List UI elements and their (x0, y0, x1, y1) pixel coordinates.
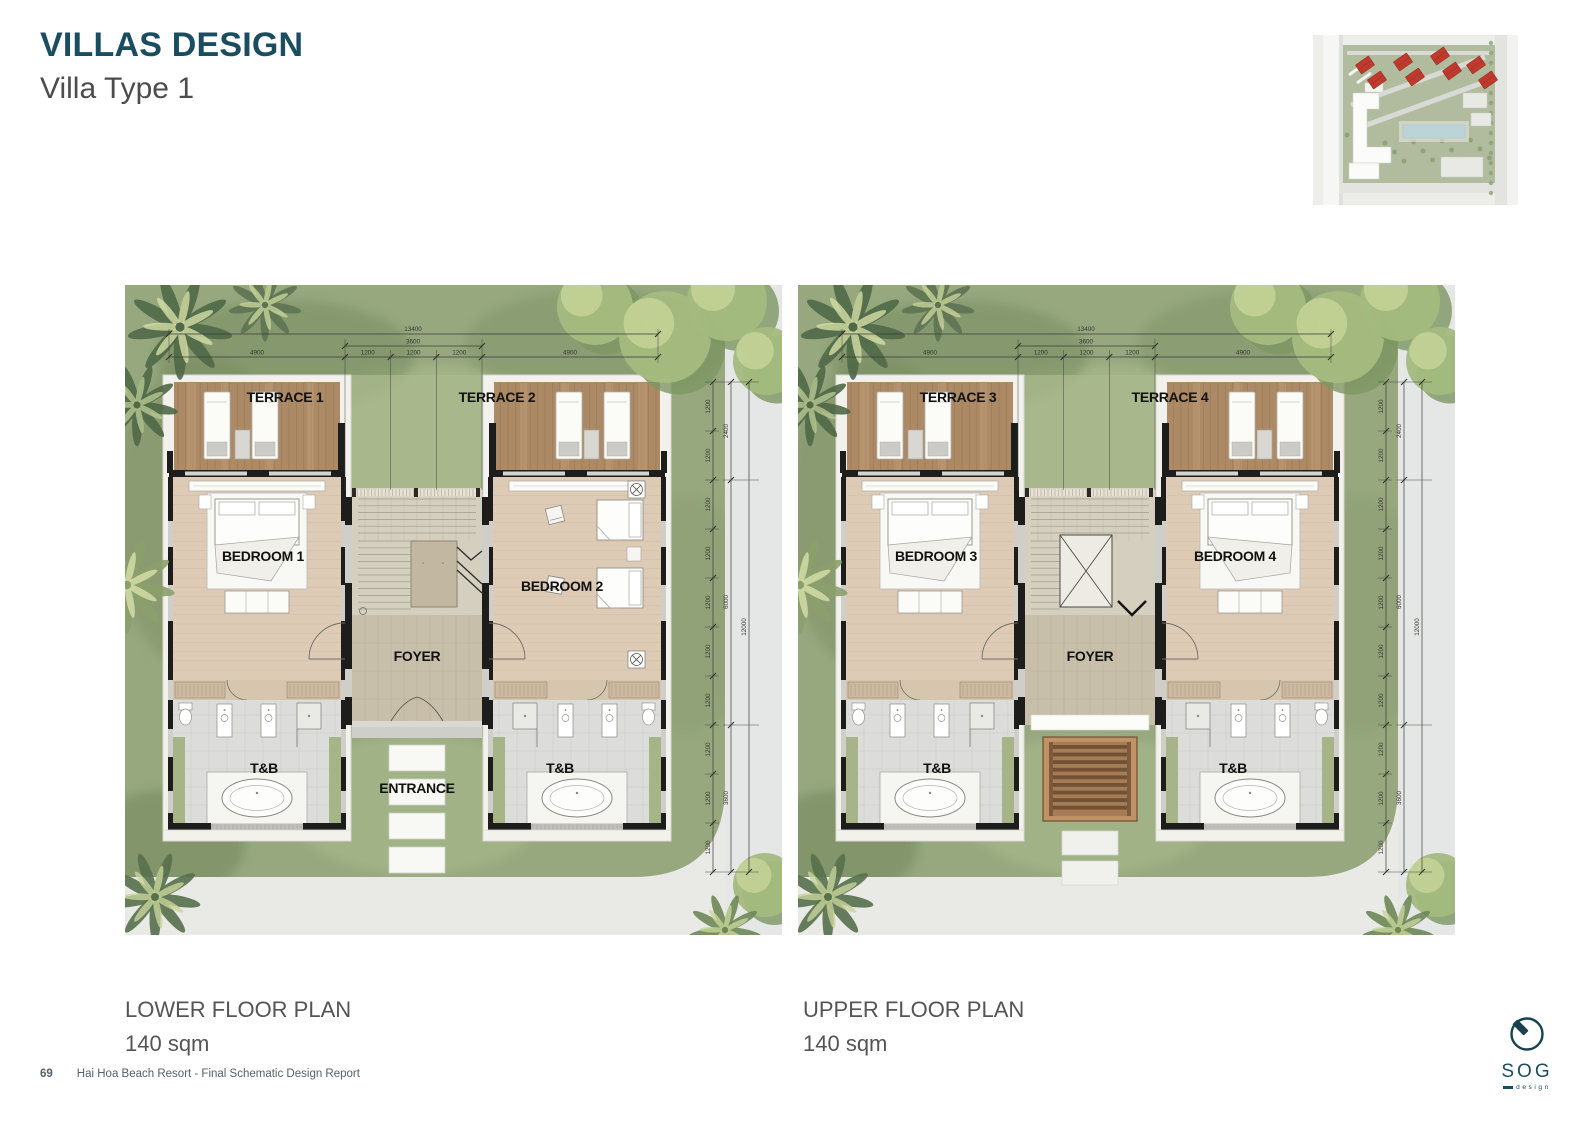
svg-text:1200: 1200 (1378, 497, 1385, 512)
sun-lounger (604, 392, 630, 459)
villa-unit-right (1156, 375, 1344, 841)
svg-text:1200: 1200 (1034, 350, 1049, 357)
room-label-terrace-left: TERRACE 3 (920, 389, 997, 405)
vanity-sink (261, 704, 276, 737)
bathtub (207, 772, 307, 824)
svg-text:1200: 1200 (1378, 644, 1385, 659)
svg-text:1200: 1200 (1378, 595, 1385, 610)
bathtub (880, 772, 980, 824)
svg-text:3600: 3600 (1396, 791, 1403, 806)
svg-text:1200: 1200 (705, 644, 712, 659)
room-label-bedroom-left: BEDROOM 3 (895, 548, 978, 564)
svg-text:1200: 1200 (1079, 350, 1094, 357)
room-label-bedroom-right: BEDROOM 4 (1194, 548, 1277, 564)
report-title: Hai Hoa Beach Resort - Final Schematic D… (77, 1068, 360, 1080)
room-label-tb-left: T&B (250, 760, 278, 776)
vanity-sink (558, 704, 573, 737)
svg-text:1200: 1200 (361, 350, 376, 357)
villa-unit-right (483, 375, 671, 841)
svg-text:1200: 1200 (1378, 546, 1385, 561)
svg-text:1200: 1200 (1125, 350, 1140, 357)
sog-logo-mark (1505, 1012, 1549, 1056)
toilet (179, 703, 192, 725)
svg-text:1200: 1200 (705, 497, 712, 512)
vanity-sink (890, 704, 905, 737)
vanity-sink (1275, 704, 1290, 737)
chair (545, 505, 564, 524)
plan-caption-area: 140 sqm (125, 1028, 351, 1059)
plan-caption-area: 140 sqm (803, 1028, 1024, 1059)
sun-lounger (204, 392, 230, 459)
site-plan-thumbnail (1313, 35, 1518, 205)
page-subtitle: Villa Type 1 (40, 72, 194, 106)
svg-text:1200: 1200 (406, 350, 421, 357)
room-label-terrace-left: TERRACE 1 (247, 389, 324, 405)
sun-lounger (877, 392, 903, 459)
upper-floor-plan-caption: UPPER FLOOR PLAN 140 sqm (803, 994, 1024, 1059)
plan-caption-title: UPPER FLOOR PLAN (803, 994, 1024, 1025)
svg-text:1200: 1200 (1378, 448, 1385, 463)
svg-text:4900: 4900 (250, 350, 265, 357)
svg-text:12000: 12000 (741, 618, 748, 636)
stepping-stone (389, 847, 445, 873)
svg-text:4900: 4900 (563, 350, 578, 357)
stepping-stone (389, 813, 445, 839)
vanity-sink (934, 704, 949, 737)
svg-text:1200: 1200 (452, 350, 467, 357)
bathtub (1200, 772, 1300, 824)
page-footer: 69 Hai Hoa Beach Resort - Final Schemati… (40, 1068, 360, 1080)
svg-text:1200: 1200 (705, 693, 712, 708)
room-label-foyer: FOYER (394, 648, 441, 664)
floor-drain-symbol (628, 651, 645, 668)
svg-text:1200: 1200 (705, 791, 712, 806)
page-number: 69 (40, 1068, 53, 1080)
upper-floor-plan-drawing: TERRACE 3TERRACE 4BEDROOM 3BEDROOM 4FOYE… (798, 285, 1455, 935)
toilet (852, 703, 865, 725)
svg-text:3600: 3600 (723, 791, 730, 806)
room-label-tb-left: T&B (923, 760, 951, 776)
logo-subtitle: design (1516, 1084, 1551, 1091)
svg-text:13400: 13400 (1077, 326, 1095, 333)
room-label-bedroom-right: BEDROOM 2 (521, 578, 604, 594)
room-label-bedroom-left: BEDROOM 1 (222, 548, 305, 564)
entrance-porch (352, 727, 482, 738)
report-page: VILLAS DESIGN Villa Type 1 TERRACE 1TERR… (0, 0, 1587, 1123)
svg-text:3600: 3600 (406, 339, 421, 346)
svg-text:2400: 2400 (1396, 424, 1403, 439)
vanity-sink (1231, 704, 1246, 737)
room-label-tb-right: T&B (546, 760, 574, 776)
logo-dash (1503, 1086, 1513, 1089)
room-label-entrance: ENTRANCE (379, 780, 454, 796)
pergola-roof (1043, 737, 1137, 821)
svg-text:1200: 1200 (1378, 791, 1385, 806)
svg-text:1200: 1200 (705, 399, 712, 414)
svg-text:1200: 1200 (1378, 742, 1385, 757)
toilet (642, 703, 655, 725)
vanity-sink (602, 704, 617, 737)
svg-text:2400: 2400 (723, 424, 730, 439)
svg-text:6000: 6000 (1396, 595, 1403, 610)
svg-text:12000: 12000 (1414, 618, 1421, 636)
sun-lounger (1229, 392, 1255, 459)
bathtub (527, 772, 627, 824)
svg-text:4900: 4900 (1236, 350, 1251, 357)
sog-logo: SOG design (1492, 1012, 1562, 1091)
lower-floor-plan-drawing: TERRACE 1TERRACE 2BEDROOM 1BEDROOM 2FOYE… (125, 285, 782, 935)
svg-text:1200: 1200 (705, 742, 712, 757)
lower-floor-plan-caption: LOWER FLOOR PLAN 140 sqm (125, 994, 351, 1059)
room-label-foyer: FOYER (1067, 648, 1114, 664)
svg-text:13400: 13400 (404, 326, 422, 333)
sun-lounger (556, 392, 582, 459)
pool (1403, 125, 1465, 138)
vanity-sink (217, 704, 232, 737)
svg-text:1200: 1200 (705, 840, 712, 855)
room-label-terrace-right: TERRACE 4 (1132, 389, 1209, 405)
svg-text:6000: 6000 (723, 595, 730, 610)
svg-text:1200: 1200 (705, 595, 712, 610)
room-label-terrace-right: TERRACE 2 (459, 389, 536, 405)
sun-lounger (1277, 392, 1303, 459)
toilet (1315, 703, 1328, 725)
room-label-tb-right: T&B (1219, 760, 1247, 776)
plan-caption-title: LOWER FLOOR PLAN (125, 994, 351, 1025)
page-title: VILLAS DESIGN (40, 26, 303, 65)
svg-text:1200: 1200 (705, 546, 712, 561)
stepping-stone (389, 745, 445, 771)
svg-text:1200: 1200 (705, 448, 712, 463)
svg-text:1200: 1200 (1378, 693, 1385, 708)
svg-text:4900: 4900 (923, 350, 938, 357)
floor-drain-symbol (628, 481, 645, 498)
svg-text:1200: 1200 (1378, 840, 1385, 855)
svg-text:1200: 1200 (1378, 399, 1385, 414)
svg-text:3600: 3600 (1079, 339, 1094, 346)
logo-name: SOG (1492, 1061, 1562, 1083)
